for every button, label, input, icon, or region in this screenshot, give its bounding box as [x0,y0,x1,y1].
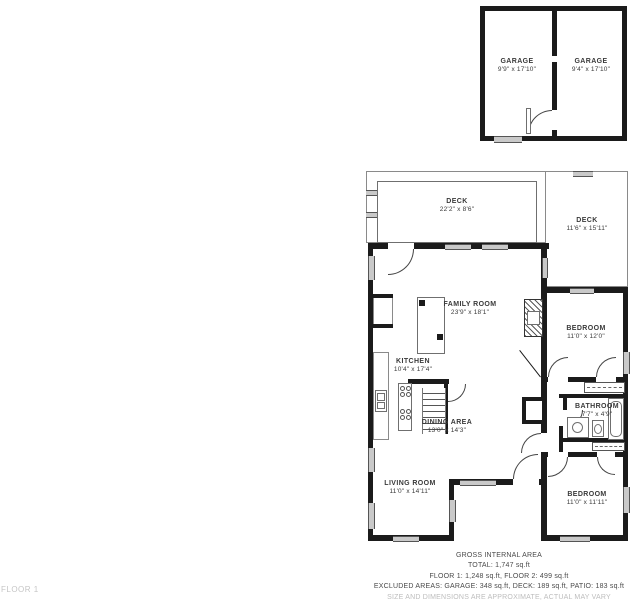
burner [400,386,405,391]
fireplace-insert [527,311,540,325]
bedroom1-top-window [570,288,594,294]
burner [406,392,411,397]
patio-door-arc [513,454,538,479]
deck-rail-tick-1 [366,190,377,196]
kitchen-sink-bowl-2 [377,402,385,409]
garage-divider-wall-lower [552,130,557,136]
burner [400,415,405,420]
island-fixture-1 [419,300,425,306]
room-dims: 11'0" x 11'11" [567,499,608,506]
burner [406,409,411,414]
garage-window [494,136,522,143]
closet-rod [595,446,622,447]
summary-excluded: EXCLUDED AREAS: GARAGE: 348 sq.ft, DECK:… [368,582,630,592]
stair-door-arc [448,384,466,402]
family-room-window-2 [482,244,508,250]
garage-left-label: GARAGE 9'9" x 17'10" [498,58,536,73]
burner [406,386,411,391]
room-name: GARAGE [498,58,536,65]
room-dims: 9'9" x 17'10" [498,66,536,73]
garage-divider-wall-mid [552,62,557,110]
summary-floors: FLOOR 1: 1,248 sq.ft, FLOOR 2: 499 sq.ft [368,572,630,582]
hall-bath-wall-upper [563,398,567,410]
hall-closet [592,442,625,451]
garage-right-label: GARAGE 9'4" x 17'10" [572,58,610,73]
stove-burners-lower [400,409,411,420]
garage-door-leaf [526,108,531,134]
right-wall-window-2 [623,487,630,513]
deck-top-label: DECK 22'2" x 8'6" [440,198,474,213]
left-wall-window-1 [368,256,375,280]
living-room-label: LIVING ROOM 11'0" x 14'11" [384,480,435,495]
living-room-right-window [449,500,456,522]
room-dims: 23'9" x 18'1" [443,309,496,316]
patio-notch-window [460,480,496,486]
toilet-bowl [594,424,602,434]
left-wall-window-2 [368,448,375,472]
room-name: BEDROOM [566,325,605,332]
room-name: DINING AREA [422,419,472,426]
chimney-line [519,350,541,377]
burner [406,415,411,420]
garage-divider-wall-upper [552,11,557,56]
dining-area-label: DINING AREA 13'0" x 14'3" [422,419,472,434]
room-dims: 11'0" x 12'0" [566,333,605,340]
pantry-outline [373,296,393,326]
closet-rod [587,387,622,388]
deck-rail-tick-2 [366,212,377,218]
bathroom-label: BATHROOM 7'7" x 4'9" [575,403,619,418]
bathroom-sink [572,422,583,433]
room-dims: 13'0" x 14'3" [422,427,472,434]
stair-top-wall [408,379,449,384]
room-dims: 11'0" x 14'11" [384,488,435,495]
pantry-wall-top [373,294,393,298]
room-name: BATHROOM [575,403,619,410]
deck-right-label: DECK 11'6" x 15'11" [566,217,607,232]
floor-number-label: FLOOR 1 [1,585,39,594]
kitchen-label: KITCHEN 10'4" x 17'4" [394,358,432,373]
hall-entry-opening [548,377,568,382]
center-wall-lower [541,453,547,540]
room-name: DECK [440,198,474,205]
family-room-label: FAMILY ROOM 23'9" x 18'1" [443,301,496,316]
center-wall-window [542,258,548,278]
room-dims: 22'2" x 8'6" [440,206,474,213]
bedroom1-closet [584,382,625,393]
family-room-window-1 [445,244,471,250]
summary-total: TOTAL: 1,747 sq.ft [368,561,630,571]
room-dims: 7'7" x 4'9" [575,411,619,418]
room-dims: 10'4" x 17'4" [394,366,432,373]
summary-title: GROSS INTERNAL AREA [368,551,630,561]
area-summary: GROSS INTERNAL AREA TOTAL: 1,747 sq.ft F… [368,551,630,600]
bedroom1-door-arc [596,357,616,377]
hall-entry-door-arc [548,357,568,377]
room-name: DECK [566,217,607,224]
patio-door-opening [513,479,539,485]
kitchen-sink-bowl-1 [377,393,385,401]
room-name: GARAGE [572,58,610,65]
dining-closet [522,397,546,424]
floor-plan: GARAGE 9'9" x 17'10" GARAGE 9'4" x 17'10… [0,0,634,600]
island-fixture-2 [437,334,443,340]
room-name: FAMILY ROOM [443,301,496,308]
room-name: LIVING ROOM [384,480,435,487]
bedroom2-label: BEDROOM 11'0" x 11'11" [567,491,608,506]
room-dims: 11'6" x 15'11" [566,225,607,232]
room-name: KITCHEN [394,358,432,365]
deck-door-arc [388,249,414,275]
bedroom2-closet-door-arc [597,457,615,475]
bedroom2-door-arc [548,457,568,477]
burner [400,409,405,414]
burner [400,392,405,397]
room-name: BEDROOM [567,491,608,498]
living-room-bottom-window [393,536,419,542]
hall-to-dining-door-arc [521,433,541,453]
right-wall-window-1 [623,352,630,374]
left-wall-window-3 [368,503,375,529]
bedroom1-label: BEDROOM 11'0" x 12'0" [566,325,605,340]
summary-disclaimer: SIZE AND DIMENSIONS ARE APPROXIMATE, ACT… [368,593,630,600]
room-dims: 9'4" x 17'10" [572,66,610,73]
stove-burners-upper [400,386,411,397]
deck-rail-tick-3 [573,171,593,177]
pantry-wall-bottom [373,324,393,328]
bedroom2-bottom-window [560,536,590,542]
